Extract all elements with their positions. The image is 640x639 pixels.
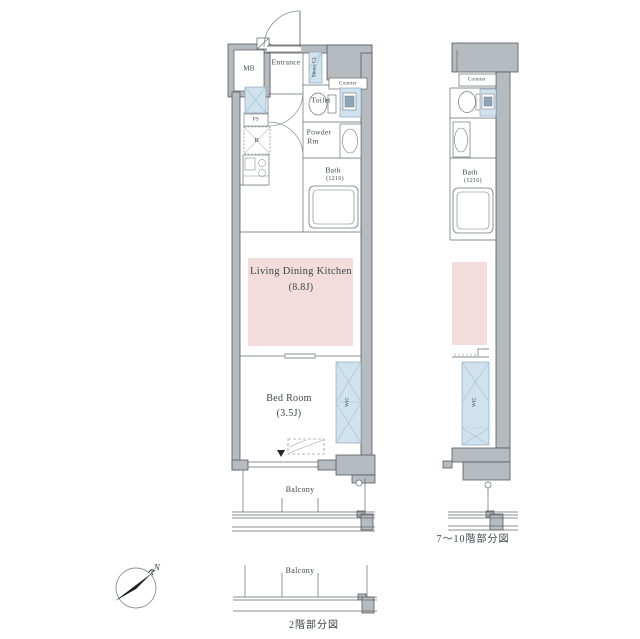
label-powder-2: Rm [307, 137, 318, 145]
label-bath: Bath [325, 166, 340, 174]
bedroom-extras [277, 439, 324, 457]
label-north: N [154, 564, 160, 573]
caption-main-plan: 2階部分図 [289, 621, 339, 631]
entrance-door [264, 11, 301, 53]
washbasin [340, 124, 361, 158]
label-bath-upper: Bath [462, 168, 477, 176]
label-shoes-closet: Shoes Cl. [312, 56, 318, 77]
label-bath-size: (1216) [326, 176, 344, 182]
north-compass-icon [115, 568, 156, 608]
label-balcony: Balcony [286, 486, 315, 494]
label-toilet: Toilet [311, 96, 330, 104]
label-wic: WIC [346, 397, 351, 407]
interior-door-arcs [269, 92, 303, 156]
bathtub [309, 186, 358, 228]
label-entrance: Entrance [271, 58, 300, 66]
label-refrigerator: R [255, 138, 260, 145]
floorplan-page: MB Entrance Shoes Cl. Counter Toilet Pow… [0, 0, 640, 639]
label-pipe-space: PS [253, 118, 259, 123]
toilet-fixture-upper [459, 89, 497, 116]
label-mb: MB [243, 66, 255, 73]
main-plan [228, 11, 377, 613]
label-lower-balcony: Balcony [286, 567, 315, 575]
caption-partial-plan: 7〜10階部分図 [437, 535, 510, 545]
ldk-zone-upper [452, 262, 487, 345]
label-powder-1: Powder [307, 128, 332, 136]
balcony-railing-upper [448, 488, 518, 530]
label-bedroom: Bed Room [266, 394, 311, 404]
partial-plan [443, 43, 518, 530]
label-ldk: Living Dining Kitchen [250, 267, 352, 278]
label-counter-upper: Counter [468, 78, 486, 83]
label-bedroom-size: (3.5J) [277, 409, 302, 419]
partition-ticks [455, 353, 475, 357]
washbasin-upper [453, 122, 470, 157]
label-ldk-size: (8.8J) [289, 283, 314, 293]
drain-circle [356, 480, 362, 486]
label-wic-upper: WIC [473, 397, 478, 407]
label-bath-size-upper: (1216) [464, 178, 482, 184]
drain-circle-upper [485, 482, 491, 488]
label-counter: Counter [339, 82, 357, 87]
bathtub-upper [453, 188, 493, 233]
